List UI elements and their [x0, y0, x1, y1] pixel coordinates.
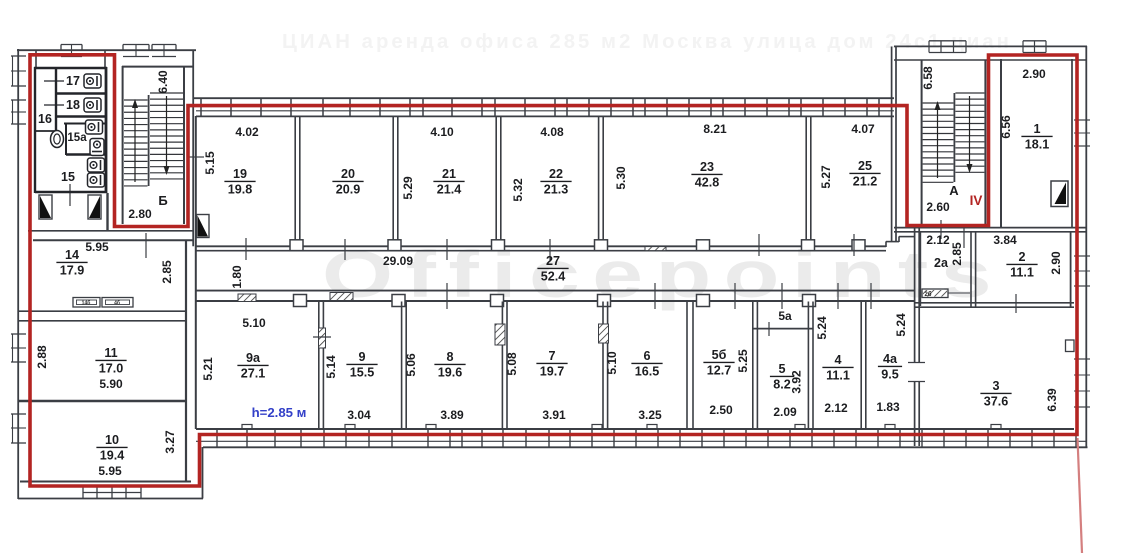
svg-text:5.25: 5.25	[736, 349, 750, 373]
svg-text:5.24: 5.24	[894, 313, 908, 337]
svg-text:19.8: 19.8	[228, 183, 253, 197]
svg-text:4: 4	[834, 353, 841, 367]
svg-text:5а: 5а	[778, 309, 792, 323]
svg-text:1.83: 1.83	[876, 400, 900, 414]
svg-text:2.50: 2.50	[709, 403, 733, 417]
svg-text:8.2: 8.2	[773, 378, 791, 392]
svg-text:52.4: 52.4	[541, 270, 566, 284]
svg-text:27.1: 27.1	[241, 367, 266, 381]
svg-text:18.1: 18.1	[1025, 138, 1050, 152]
svg-text:3.89: 3.89	[440, 408, 464, 422]
svg-text:20.9: 20.9	[336, 183, 361, 197]
svg-text:17.9: 17.9	[60, 264, 85, 278]
svg-text:8: 8	[446, 350, 453, 364]
svg-text:3.91: 3.91	[542, 408, 566, 422]
svg-text:21.3: 21.3	[544, 183, 569, 197]
svg-text:6.56: 6.56	[999, 115, 1013, 139]
svg-text:21.4: 21.4	[437, 183, 462, 197]
svg-text:22: 22	[549, 167, 563, 181]
svg-text:5.24: 5.24	[815, 316, 829, 340]
svg-text:15а: 15а	[67, 132, 87, 144]
svg-text:IV: IV	[970, 193, 983, 208]
svg-text:14: 14	[65, 248, 79, 262]
svg-text:7: 7	[548, 349, 555, 363]
svg-text:16.5: 16.5	[635, 365, 660, 379]
svg-text:4а: 4а	[883, 352, 898, 366]
svg-text:3.92: 3.92	[790, 370, 804, 394]
svg-text:3.04: 3.04	[347, 408, 371, 422]
svg-text:2.85: 2.85	[950, 242, 964, 266]
svg-text:2.88: 2.88	[35, 345, 49, 369]
svg-text:5.14: 5.14	[324, 355, 338, 379]
svg-text:2.85: 2.85	[160, 260, 174, 284]
svg-text:23: 23	[700, 160, 714, 174]
svg-text:21.2: 21.2	[853, 175, 878, 189]
svg-text:2.90: 2.90	[1022, 67, 1046, 81]
svg-text:h=2.85 м: h=2.85 м	[252, 405, 307, 420]
svg-text:5.32: 5.32	[511, 178, 525, 202]
svg-text:1: 1	[1033, 122, 1040, 136]
svg-text:5б: 5б	[712, 348, 727, 362]
svg-text:2.12: 2.12	[824, 401, 848, 415]
svg-text:5.95: 5.95	[98, 464, 122, 478]
svg-text:29.09: 29.09	[383, 254, 413, 268]
svg-text:5.08: 5.08	[505, 352, 519, 376]
svg-text:2: 2	[1018, 250, 1025, 264]
svg-text:42.8: 42.8	[695, 176, 720, 190]
svg-text:4.02: 4.02	[235, 125, 259, 139]
svg-text:4б: 4б	[114, 299, 120, 306]
svg-text:2.60: 2.60	[926, 200, 950, 214]
svg-text:2а: 2а	[934, 256, 949, 270]
svg-text:5.15: 5.15	[203, 151, 217, 175]
svg-text:ЦИАН аренда офиса 285 м2 Москв: ЦИАН аренда офиса 285 м2 Москва улица до…	[282, 31, 1012, 53]
svg-text:5.10: 5.10	[242, 316, 266, 330]
svg-text:5.95: 5.95	[85, 240, 109, 254]
svg-text:19.7: 19.7	[540, 365, 565, 379]
svg-text:2.80: 2.80	[128, 207, 152, 221]
svg-text:6: 6	[643, 349, 650, 363]
svg-text:16: 16	[38, 112, 52, 126]
svg-text:8.21: 8.21	[703, 122, 727, 136]
svg-text:15: 15	[61, 170, 75, 184]
svg-text:1.80: 1.80	[230, 265, 244, 289]
svg-text:17.0: 17.0	[99, 362, 124, 376]
svg-text:3.27: 3.27	[163, 430, 177, 454]
svg-text:27: 27	[546, 254, 560, 268]
svg-text:19.6: 19.6	[438, 366, 463, 380]
svg-text:5.30: 5.30	[614, 166, 628, 190]
svg-text:4.07: 4.07	[851, 122, 875, 136]
svg-text:18: 18	[66, 98, 80, 112]
svg-text:21: 21	[442, 167, 456, 181]
svg-text:37.6: 37.6	[984, 395, 1009, 409]
svg-text:17: 17	[66, 74, 80, 88]
svg-text:3: 3	[992, 379, 999, 393]
svg-text:2.90: 2.90	[1049, 251, 1063, 275]
svg-text:15.5: 15.5	[350, 366, 375, 380]
svg-text:5.29: 5.29	[401, 176, 415, 200]
svg-text:10: 10	[105, 433, 119, 447]
svg-text:9а: 9а	[246, 351, 261, 365]
svg-text:5.06: 5.06	[404, 353, 418, 377]
svg-text:11: 11	[104, 346, 117, 360]
svg-text:5.21: 5.21	[201, 357, 215, 381]
svg-text:Б: Б	[158, 193, 167, 208]
svg-text:4.08: 4.08	[540, 125, 564, 139]
svg-text:2.09: 2.09	[773, 405, 797, 419]
svg-text:12.7: 12.7	[707, 364, 732, 378]
svg-text:20: 20	[341, 167, 355, 181]
svg-text:5: 5	[778, 362, 785, 376]
svg-text:6.58: 6.58	[921, 66, 935, 90]
svg-text:19.4: 19.4	[100, 449, 125, 463]
svg-text:3.84: 3.84	[993, 233, 1017, 247]
svg-text:14б: 14б	[82, 299, 91, 306]
svg-text:9.5: 9.5	[881, 368, 899, 382]
svg-text:5.10: 5.10	[605, 351, 619, 375]
svg-text:2.12: 2.12	[926, 233, 950, 247]
svg-text:А: А	[949, 183, 959, 198]
svg-text:9: 9	[358, 350, 365, 364]
svg-text:3.25: 3.25	[638, 408, 662, 422]
svg-text:6.40: 6.40	[156, 70, 170, 94]
svg-text:19: 19	[233, 167, 247, 181]
svg-text:6.39: 6.39	[1045, 388, 1059, 412]
svg-text:2б: 2б	[924, 291, 931, 298]
svg-text:11.1: 11.1	[826, 369, 850, 383]
svg-text:5.90: 5.90	[99, 377, 123, 391]
svg-text:5.27: 5.27	[819, 165, 833, 189]
svg-text:4.10: 4.10	[430, 125, 454, 139]
svg-text:11.1: 11.1	[1010, 266, 1034, 280]
svg-text:25: 25	[858, 159, 872, 173]
